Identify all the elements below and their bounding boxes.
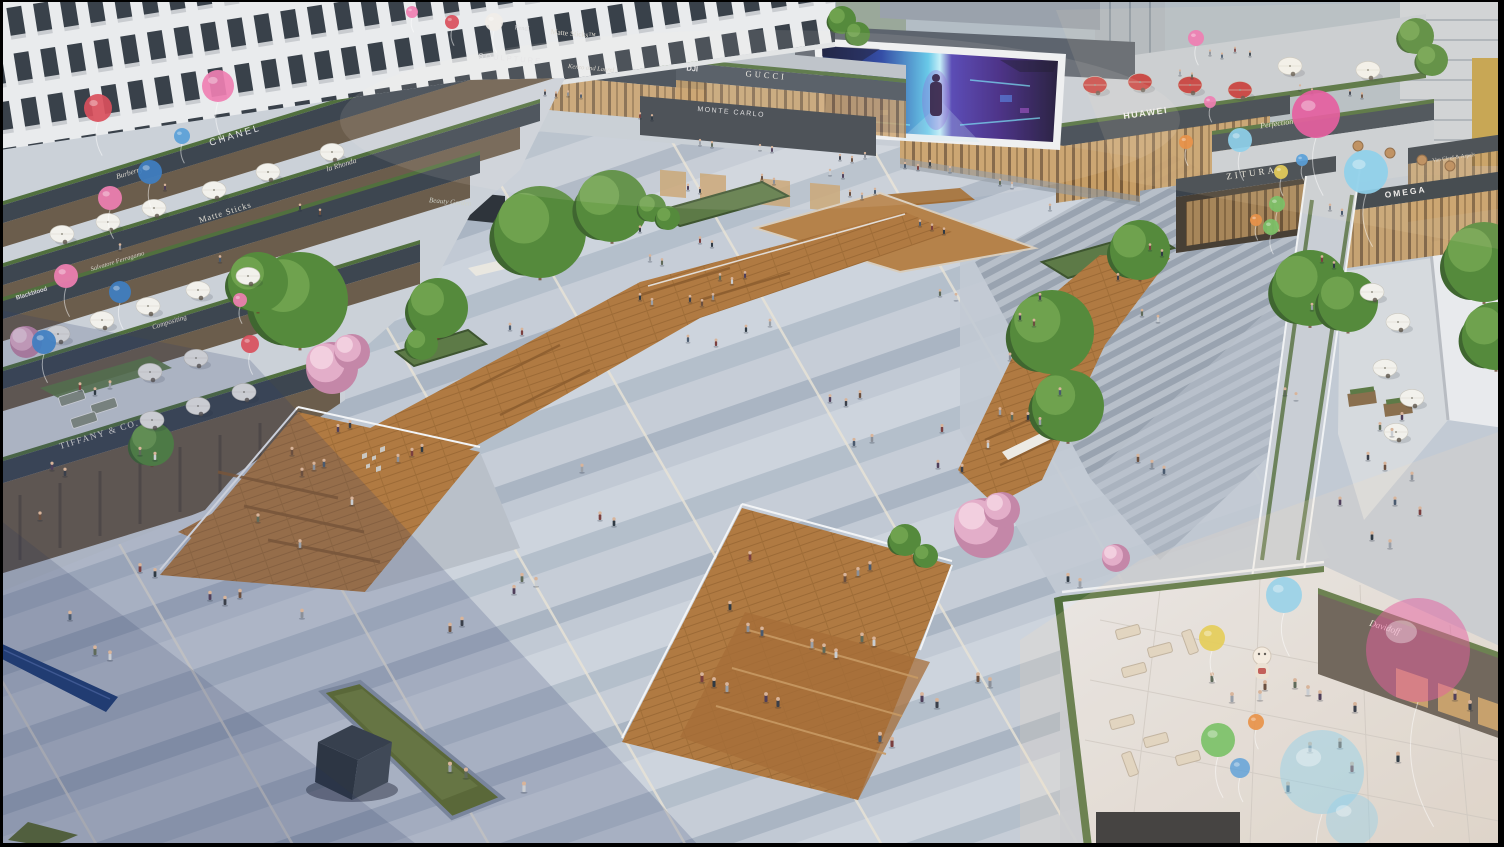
person-head (861, 193, 863, 195)
person-body (521, 330, 523, 335)
balloon-highlight (448, 18, 452, 21)
balloon-body (174, 128, 190, 144)
person-body (687, 337, 689, 342)
person-shadow (1077, 587, 1083, 589)
person-body (139, 450, 142, 455)
person-body (567, 92, 569, 96)
person-head (336, 424, 339, 427)
person-shadow (107, 660, 113, 662)
person-head (567, 90, 569, 92)
person-shadow (395, 462, 401, 464)
person-shadow (903, 168, 907, 170)
person-head (1026, 412, 1029, 415)
person-shadow (918, 226, 922, 228)
person-head (1390, 428, 1393, 431)
person-body (651, 116, 653, 120)
person-shadow (566, 96, 570, 98)
balloon-body (98, 186, 122, 210)
person-body (1401, 415, 1403, 420)
person-head (715, 339, 718, 342)
person-body (689, 297, 691, 302)
tree-canopy (657, 208, 670, 221)
person-body (1311, 305, 1313, 310)
person-body (79, 385, 81, 390)
balloon-highlight (1336, 805, 1352, 816)
person-shadow (760, 180, 764, 182)
person-body (599, 514, 602, 520)
person-shadow (92, 395, 97, 397)
balloon-body (1292, 90, 1340, 138)
person-body (1067, 576, 1070, 582)
balloon-highlight (1277, 168, 1281, 171)
person-shadow (520, 335, 525, 337)
person-body (725, 685, 728, 692)
balloon-highlight (103, 191, 110, 196)
person-shadow (930, 230, 934, 232)
person-shadow (163, 190, 167, 192)
person-head (1221, 53, 1223, 55)
person-body (448, 765, 451, 772)
balloon-body (1204, 96, 1216, 108)
person-body (929, 162, 931, 166)
person-head (719, 273, 722, 276)
person-shadow (1360, 98, 1364, 100)
balloon-body (202, 70, 234, 102)
person-body (257, 516, 260, 522)
person-head (939, 289, 942, 292)
person-head (109, 380, 112, 383)
person-shadow (763, 702, 770, 704)
person-head (872, 636, 876, 640)
person-shadow (710, 247, 715, 249)
person-body (745, 327, 747, 332)
person-head (856, 567, 859, 570)
person-head (1418, 506, 1421, 509)
person-body (209, 594, 212, 600)
person-body (874, 190, 876, 194)
person-body (1411, 474, 1414, 480)
person-head (746, 623, 750, 627)
person-head (1010, 412, 1013, 415)
person-head (864, 152, 866, 154)
person-head (94, 387, 97, 390)
person-shadow (207, 600, 213, 602)
person-shadow (1348, 95, 1352, 97)
person-shadow (860, 199, 864, 201)
person-head (1049, 203, 1052, 206)
person-head (844, 398, 847, 401)
umbrella-pole (1411, 397, 1413, 399)
person-shadow (1190, 78, 1194, 80)
tree-canopy (408, 330, 426, 348)
person-body (1209, 51, 1211, 55)
balloon-highlight (488, 17, 493, 21)
person-shadow (770, 152, 774, 154)
person-head (1059, 387, 1062, 390)
person-shadow (686, 342, 691, 344)
balloon-body (406, 6, 418, 18)
umbrella-pole (101, 319, 103, 321)
person-head (759, 144, 761, 146)
person-head (904, 162, 906, 164)
person-head (1078, 578, 1082, 582)
person-head (731, 277, 734, 280)
person-shadow (928, 166, 932, 168)
balloon-body (485, 13, 503, 31)
person-body (1157, 317, 1159, 322)
person-head (711, 141, 713, 143)
person-body (715, 341, 717, 346)
person-body (999, 410, 1001, 415)
person-head (929, 160, 931, 162)
person-head (598, 511, 601, 514)
person-shadow (1208, 55, 1212, 57)
person-shadow (948, 172, 952, 174)
person-head (420, 444, 423, 447)
person-head (851, 156, 853, 158)
person-head (63, 468, 66, 471)
balloon-highlight (143, 165, 150, 170)
person-shadow (511, 594, 517, 596)
person-shadow (1399, 420, 1404, 422)
balloon-highlight (1352, 159, 1365, 169)
person-shadow (222, 605, 228, 607)
person-head (699, 139, 701, 141)
person-body (839, 156, 841, 160)
person-body (580, 94, 582, 98)
person-shadow (1032, 326, 1037, 328)
person-body (119, 245, 121, 250)
plaza-rendering: CHANEL Burberry la Rhonda Matte Sticks S… (0, 0, 1504, 847)
person-shadow (347, 428, 352, 430)
balloon-highlight (113, 286, 120, 291)
tree-canopy (411, 283, 444, 316)
person-shadow (1389, 436, 1394, 438)
balloon-highlight (1386, 620, 1417, 643)
person-shadow (838, 160, 842, 162)
person-body (509, 325, 511, 330)
person-shadow (1409, 480, 1415, 482)
balloon-highlight (1266, 222, 1271, 226)
person-shadow (975, 682, 982, 684)
person-head (108, 650, 112, 654)
person-head (639, 293, 642, 296)
person-head (38, 511, 41, 514)
person-shadow (698, 145, 702, 147)
person-shadow (985, 448, 990, 450)
balloon-highlight (1234, 762, 1240, 766)
balloon-body (1269, 196, 1285, 212)
person-shadow (869, 442, 874, 444)
person-shadow (92, 655, 98, 657)
person-body (919, 222, 921, 226)
tree-canopy (1276, 256, 1318, 298)
person-head (776, 697, 780, 701)
tree-canopy (1036, 375, 1076, 415)
person-shadow (828, 175, 832, 177)
person-body (1394, 499, 1397, 505)
person-head (828, 394, 831, 397)
balloon-highlight (59, 269, 66, 274)
cafe-table (1386, 374, 1391, 379)
person-body (1468, 703, 1471, 710)
person-head (843, 573, 846, 576)
tree-canopy (1014, 296, 1060, 342)
person-head (290, 447, 293, 450)
person-shadow (1116, 280, 1121, 282)
balloon-body (233, 293, 247, 307)
person-shadow (67, 620, 73, 622)
person-head (988, 677, 992, 681)
person-head (712, 677, 716, 681)
person-head (1341, 208, 1344, 211)
person-body (937, 462, 940, 468)
person-body (1151, 462, 1154, 468)
person-shadow (459, 626, 465, 628)
person-shadow (758, 150, 762, 152)
person-shadow (321, 467, 327, 469)
tree-canopy (1321, 277, 1354, 310)
person-body (1318, 693, 1321, 700)
balloon-highlight (1233, 133, 1240, 138)
person-head (153, 452, 156, 455)
person-shadow (939, 432, 944, 434)
person-head (712, 293, 715, 296)
person-head (1019, 313, 1022, 316)
person-head (917, 164, 919, 166)
umbrella-pole (197, 289, 199, 291)
person-shadow (867, 570, 873, 572)
person-body (699, 189, 701, 193)
person-head (1329, 203, 1332, 206)
person-head (396, 454, 399, 457)
person-head (761, 174, 763, 176)
person-shadow (1037, 425, 1042, 427)
person-head (312, 462, 315, 465)
person-shadow (648, 261, 653, 263)
person-shadow (597, 520, 603, 522)
person-body (1453, 693, 1456, 700)
person-body (1353, 705, 1356, 712)
person-head (936, 460, 939, 463)
person-head (319, 208, 322, 211)
person-head (1117, 273, 1120, 276)
tree-canopy (1113, 225, 1146, 258)
person-shadow (1365, 460, 1370, 462)
person-body (859, 393, 861, 398)
person-head (868, 561, 871, 564)
person-body (711, 242, 713, 247)
person-shadow (1328, 210, 1332, 212)
person-shadow (447, 772, 454, 774)
person-shadow (710, 147, 714, 149)
person-shadow (1332, 268, 1337, 270)
balloon-body (1344, 150, 1388, 194)
person-head (522, 781, 526, 785)
person-body (164, 186, 166, 190)
person-shadow (998, 185, 1002, 187)
person-body (744, 273, 746, 278)
person-head (138, 447, 141, 450)
person-head (858, 390, 861, 393)
person-body (731, 279, 733, 284)
person-shadow (1148, 250, 1153, 252)
person-body (69, 614, 72, 620)
person-head (689, 295, 692, 298)
person-body (1379, 425, 1381, 430)
person-head (769, 319, 772, 322)
cherry-blossom-tree (984, 492, 1020, 528)
person-shadow (1282, 395, 1287, 397)
person-body (988, 680, 991, 687)
person-head (700, 672, 704, 676)
person-head (1284, 387, 1287, 390)
person-body (1306, 688, 1309, 695)
cafe-table (269, 178, 274, 183)
person-head (1141, 309, 1144, 312)
person-shadow (349, 505, 355, 507)
person-shadow (152, 460, 157, 462)
person-body (154, 571, 157, 577)
person-body (747, 626, 750, 632)
person-shadow (1382, 470, 1388, 472)
person-shadow (1392, 505, 1398, 507)
person-shadow (850, 162, 854, 164)
person-body (845, 401, 847, 406)
person-body (1299, 86, 1301, 90)
balloon-highlight (1251, 717, 1256, 721)
person-body (219, 257, 221, 262)
person-shadow (463, 778, 470, 780)
person-shadow (889, 747, 896, 749)
person-body (535, 580, 538, 586)
person-head (1400, 412, 1403, 415)
person-shadow (698, 193, 702, 195)
person-head (1011, 182, 1013, 184)
person-head (580, 92, 582, 94)
person-shadow (877, 742, 884, 744)
person-head (874, 188, 876, 190)
person-head (1234, 47, 1236, 49)
person-body (1384, 464, 1387, 470)
balloon-highlight (1301, 100, 1315, 111)
person-body (397, 456, 400, 462)
person-body (687, 186, 689, 190)
person-shadow (1140, 316, 1145, 318)
balloon-body (54, 264, 78, 288)
person-body (1361, 94, 1363, 98)
person-body (776, 700, 779, 707)
person-body (941, 427, 943, 432)
person-head (1009, 352, 1012, 355)
person-body (939, 291, 941, 296)
person-body (1333, 263, 1335, 268)
person-body (1137, 456, 1140, 462)
person-head (744, 271, 747, 274)
cherry-blossom-tree (334, 334, 370, 370)
cafe-table (1373, 298, 1378, 303)
person-shadow (934, 708, 941, 710)
person-shadow (859, 642, 865, 644)
person-head (878, 732, 882, 736)
person-body (987, 443, 990, 448)
balloon-highlight (1206, 99, 1210, 102)
person-head (1136, 454, 1139, 457)
person-head (300, 468, 303, 471)
person-shadow (919, 702, 926, 704)
person-body (857, 570, 860, 576)
person-shadow (699, 682, 706, 684)
person-head (256, 513, 259, 516)
person-shadow (611, 526, 617, 528)
person-shadow (700, 306, 705, 308)
person-body (1367, 455, 1370, 460)
balloon-highlight (1298, 157, 1302, 160)
balloon-body (1188, 30, 1204, 46)
person-shadow (1369, 540, 1375, 542)
person-head (1039, 293, 1042, 296)
person-head (849, 190, 851, 192)
person-shadow (62, 476, 68, 478)
person-head (919, 219, 922, 222)
person-head (299, 203, 302, 206)
person-head (728, 601, 732, 605)
person-head (649, 254, 652, 257)
person-head (651, 298, 654, 301)
person-head (999, 179, 1001, 181)
person-body (224, 599, 227, 605)
person-body (1339, 499, 1342, 505)
person-shadow (841, 178, 845, 180)
person-shadow (1320, 262, 1325, 264)
person-head (699, 236, 702, 239)
person-body (94, 649, 97, 655)
person-shadow (775, 707, 782, 709)
person-head (1311, 88, 1313, 90)
person-shadow (1257, 700, 1264, 702)
person-body (39, 514, 42, 520)
person-head (1157, 315, 1160, 318)
person-body (712, 295, 714, 300)
balloon-body (1266, 577, 1302, 613)
person-shadow (1018, 320, 1023, 322)
person-shadow (1293, 400, 1298, 402)
person-body (935, 701, 938, 708)
person-body (639, 228, 641, 232)
person-head (1209, 50, 1211, 52)
person-head (1383, 462, 1386, 465)
person-shadow (1352, 712, 1359, 714)
person-head (829, 169, 831, 171)
person-body (773, 180, 775, 184)
balloon-body (1263, 219, 1279, 235)
person-head (1162, 466, 1165, 469)
person-body (651, 300, 653, 305)
person-body (1179, 71, 1181, 75)
person-shadow (554, 97, 558, 99)
person-body (1349, 91, 1351, 95)
person-head (223, 596, 227, 600)
person-shadow (49, 470, 55, 472)
person-body (1027, 415, 1029, 420)
person-body (522, 785, 525, 792)
person-body (349, 423, 351, 428)
person-shadow (743, 278, 748, 280)
person-shadow (821, 653, 827, 655)
balloon-body (1230, 758, 1250, 778)
person-head (208, 591, 212, 595)
person-body (1230, 695, 1233, 702)
